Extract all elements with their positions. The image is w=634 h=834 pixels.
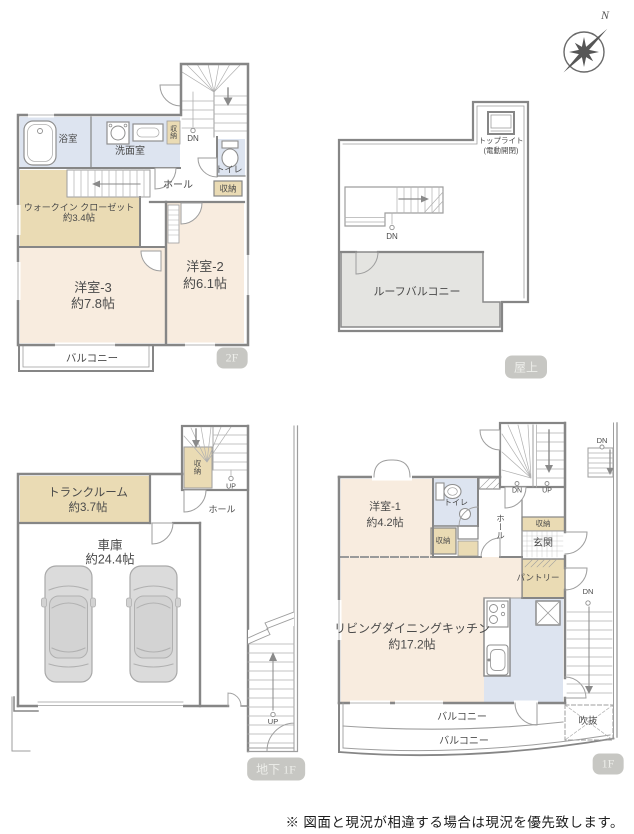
room-label-hall-1f: ホール bbox=[496, 514, 505, 540]
label-toplight-note: (電動開閉) bbox=[484, 147, 519, 155]
room-label-roof-balcony: ルーフバルコニー bbox=[373, 287, 460, 299]
outdoor-up-label-b1: UP bbox=[268, 718, 278, 726]
room-label-balcony-inner-1f: バルコニー bbox=[437, 713, 487, 724]
room-label-storage-hall-2f: 収納 bbox=[219, 185, 236, 194]
floor-badge-roof: 屋上 bbox=[505, 356, 547, 379]
room-label-bedroom3-name: 洋室-3 bbox=[74, 281, 112, 295]
compass-icon bbox=[564, 29, 608, 73]
room-label-bedroom2-name: 洋室-2 bbox=[186, 260, 224, 274]
plan-2f-linework bbox=[16, 64, 251, 371]
floor-badge-2f: 2F bbox=[217, 348, 248, 369]
room-label-ldk-size: 約17.2帖 bbox=[388, 639, 435, 652]
stair-up-label-1f: UP bbox=[542, 487, 552, 494]
stair-dn-label-1f: DN bbox=[512, 487, 522, 494]
room-label-hall-2f: ホール bbox=[163, 181, 193, 192]
room-label-pantry: パントリー bbox=[517, 574, 560, 583]
floor-badge-1f: 1F bbox=[593, 754, 624, 775]
stair-dn-label-roof: DN bbox=[386, 233, 398, 241]
plan-1f-linework bbox=[337, 423, 618, 755]
room-label-wic-size: 約3.4帖 bbox=[63, 214, 95, 224]
room-label-toilet-2f: トイレ bbox=[215, 165, 242, 174]
room-label-garage-name: 車庫 bbox=[97, 539, 122, 552]
stair-dn-label-2f: DN bbox=[187, 135, 199, 143]
room-label-void: 吹抜 bbox=[578, 717, 597, 727]
floorplan-sheet: 浴室 洗面室 収納 DN トイレ 収納 ホール ウォークイン クローゼット 約3… bbox=[0, 0, 634, 834]
room-label-hall-b1: ホール bbox=[208, 505, 235, 514]
floorplan-linework-svg bbox=[0, 0, 634, 834]
floor-badge-b1: 地下 1F bbox=[247, 758, 305, 781]
room-label-garage-size: 約24.4帖 bbox=[85, 553, 134, 566]
room-label-toilet-1f: トイレ bbox=[444, 499, 468, 507]
stair-up-label-b1: UP bbox=[226, 483, 236, 490]
room-label-bedroom1-size: 約4.2帖 bbox=[366, 518, 403, 530]
room-label-washroom: 洗面室 bbox=[115, 147, 145, 158]
disclaimer-note: ※ 図面と現況が相違する場合は現況を優先致します。 bbox=[285, 811, 624, 831]
room-label-wic-name: ウォークイン クローゼット bbox=[24, 203, 135, 212]
room-label-bedroom1-name: 洋室-1 bbox=[369, 502, 401, 514]
room-label-trunk-name: トランクルーム bbox=[48, 487, 128, 499]
compass-north-label: N bbox=[601, 8, 609, 23]
outer-dn-label-1f: DN bbox=[597, 437, 608, 445]
room-label-balcony-outer-1f: バルコニー bbox=[439, 737, 489, 748]
room-label-storage-top-2f: 収納 bbox=[169, 125, 176, 139]
room-label-storage-toilet-1f: 収納 bbox=[436, 537, 451, 545]
room-label-balcony-2f: バルコニー bbox=[66, 353, 118, 364]
room-label-storage-entrance: 収納 bbox=[536, 520, 551, 528]
room-label-ldk-name: リビングダイニングキッチン bbox=[334, 623, 490, 636]
room-label-entrance: 玄関 bbox=[533, 539, 553, 550]
room-label-bathroom: 浴室 bbox=[58, 135, 77, 145]
room-label-trunk-size: 約3.7帖 bbox=[69, 502, 108, 514]
side-dn-label-1f: DN bbox=[583, 588, 594, 596]
label-toplight-name: トップライト bbox=[479, 137, 524, 145]
plan-b1-linework bbox=[12, 426, 298, 752]
room-label-bedroom3-size: 約7.8帖 bbox=[71, 297, 115, 311]
room-label-storage-b1: 収納 bbox=[193, 460, 201, 475]
room-label-bedroom2-size: 約6.1帖 bbox=[183, 277, 227, 291]
